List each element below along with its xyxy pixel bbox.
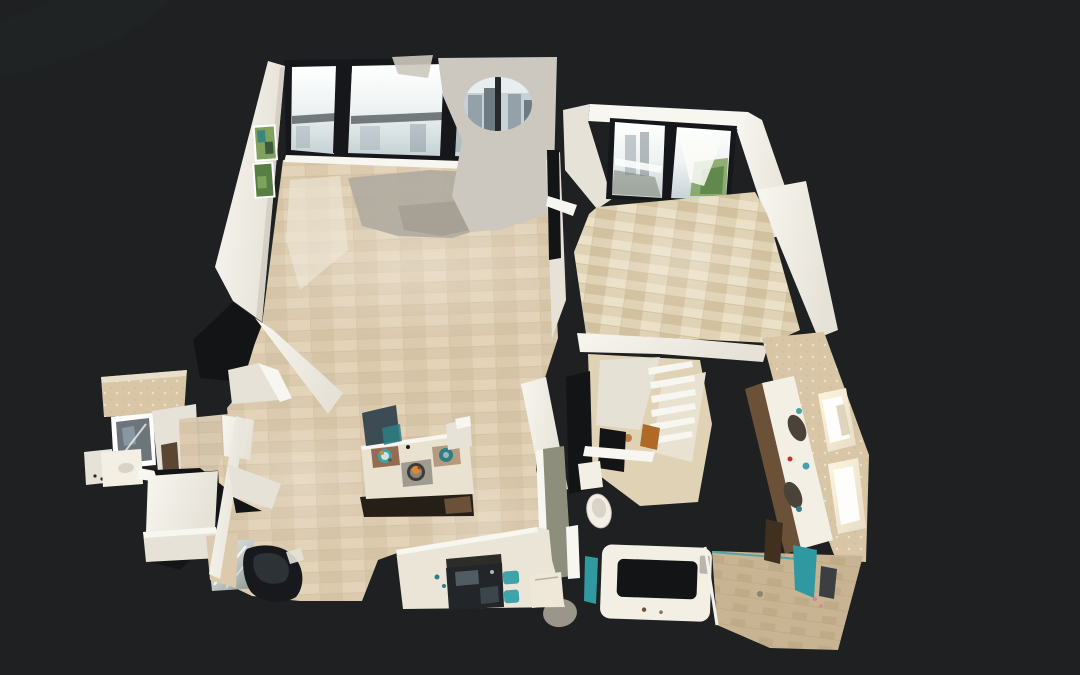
dark-door-edge [161, 442, 179, 472]
bright-wall-panel [146, 471, 218, 532]
soap-dispenser [803, 463, 810, 470]
tub-interior-scan-hole [616, 559, 697, 600]
bedroom-floor-bit [179, 414, 228, 473]
pink-accent [819, 604, 823, 608]
food-item [380, 451, 384, 455]
island-base-wood [444, 496, 472, 514]
art-detail [257, 176, 267, 189]
teal-accent [442, 584, 446, 588]
cooktop-highlight [480, 586, 499, 604]
teal-accent [435, 575, 440, 580]
city-silhouette [360, 126, 380, 150]
cooktop [446, 554, 504, 610]
bowl-center [443, 452, 449, 458]
pink-accent [813, 597, 817, 601]
art-detail [257, 130, 266, 143]
shower-towel-teal [793, 545, 817, 598]
art-detail [265, 141, 274, 154]
teal-trivet [504, 589, 520, 603]
soap-dispenser [796, 506, 802, 512]
floor-sheen [595, 210, 765, 314]
soap-dispenser [796, 408, 802, 414]
red-accent [788, 457, 793, 462]
building-through-glass [625, 135, 636, 175]
mirror-reflection [122, 426, 136, 446]
island-dot [406, 445, 410, 449]
food-accent [418, 467, 421, 470]
pantry-side-strip [566, 525, 580, 579]
city-silhouette [410, 124, 426, 152]
ledge-dot [93, 474, 96, 477]
shower-fixture-dark [819, 566, 837, 599]
balcony-doors [606, 118, 737, 203]
cooktop-knob [490, 570, 494, 574]
dollhouse-3d-scene[interactable] [0, 0, 1080, 675]
bathtub [600, 544, 713, 622]
kitchen-sink-block [529, 572, 564, 608]
dark-wood-sliver [764, 519, 783, 564]
closet-orange-accent [640, 424, 660, 450]
city-silhouette [296, 126, 310, 148]
cooktop-highlight [455, 570, 479, 586]
shower-drain [757, 591, 763, 597]
tub-towel-teal [584, 556, 598, 604]
teal-trivet [503, 570, 520, 584]
mullion-through-hole [495, 75, 501, 133]
toilet-tank [578, 461, 603, 490]
room-living [193, 55, 580, 601]
food-item [388, 458, 392, 462]
dollhouse-viewport[interactable] [0, 0, 1080, 675]
